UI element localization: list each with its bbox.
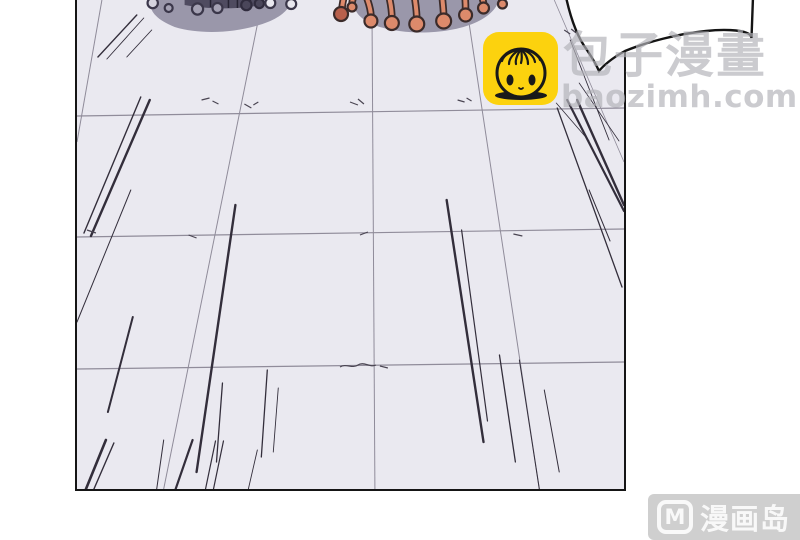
blob-creature-left: [148, 0, 297, 32]
tentacle-creature-right: [334, 0, 507, 32]
manhuadao-m-badge-icon: M: [657, 500, 693, 534]
baozi-bun-icon: [483, 32, 558, 105]
manhuadao-watermark: M 漫画岛: [648, 494, 800, 540]
floor-grid-horizontals: [77, 108, 624, 369]
baozi-watermark-title: 包子漫畫: [563, 30, 767, 84]
manhuadao-site-name: 漫画岛: [700, 496, 790, 538]
baozi-watermark-url: baozimh.com: [561, 79, 798, 115]
comic-page: 包子漫畫 baozimh.com M 漫画岛: [0, 0, 800, 540]
